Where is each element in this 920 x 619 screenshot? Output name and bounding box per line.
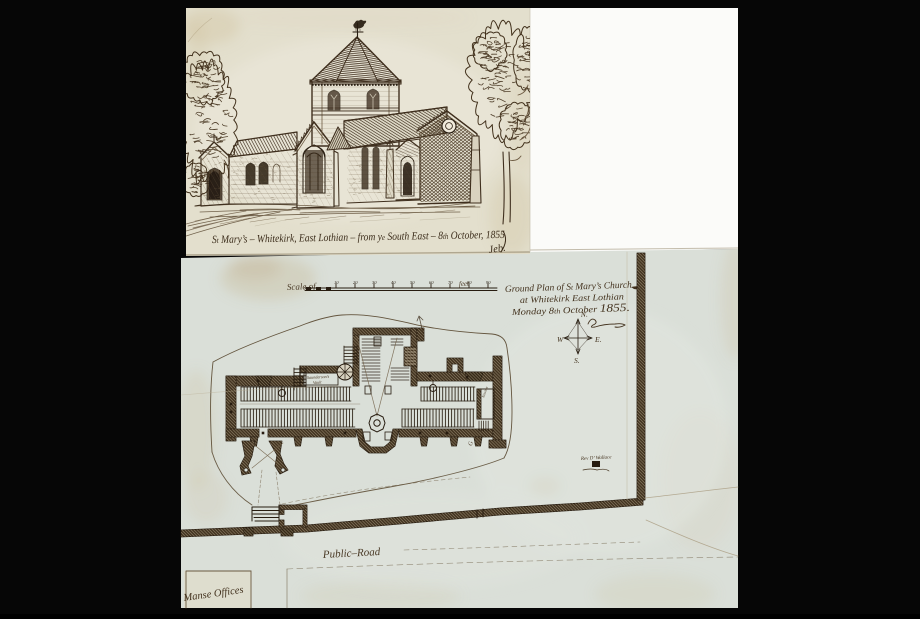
svg-text:N.: N. bbox=[580, 310, 589, 320]
svg-text:70: 70 bbox=[448, 280, 453, 285]
svg-text:10: 10 bbox=[334, 280, 339, 285]
svg-text:Vault: Vault bbox=[313, 380, 323, 385]
svg-text:40: 40 bbox=[391, 280, 396, 285]
svg-text:W: W bbox=[557, 335, 564, 344]
svg-text:S.: S. bbox=[574, 356, 580, 365]
svg-text:30: 30 bbox=[372, 280, 377, 285]
svg-text:20: 20 bbox=[353, 280, 358, 285]
svg-text:90: 90 bbox=[486, 280, 491, 285]
svg-text:60: 60 bbox=[429, 280, 434, 285]
svg-text:50: 50 bbox=[410, 280, 415, 285]
svg-text:feet: feet bbox=[459, 280, 470, 288]
svg-text:E.: E. bbox=[594, 335, 602, 344]
